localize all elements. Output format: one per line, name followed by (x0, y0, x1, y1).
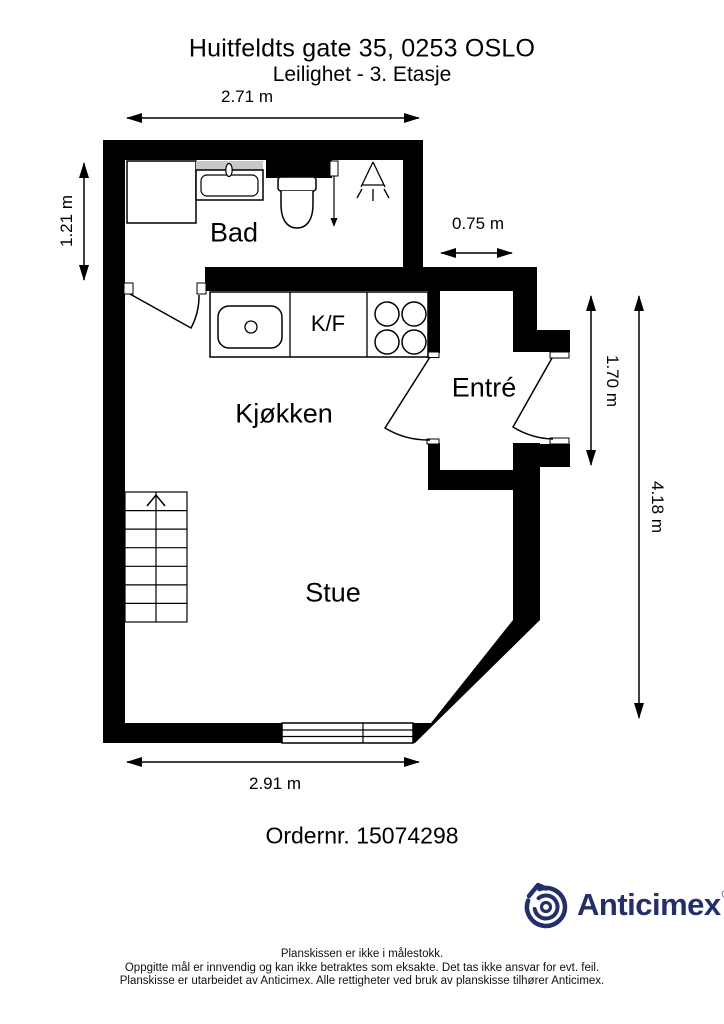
room-label-fridge-freezer: K/F (311, 311, 345, 337)
room-label-entrance: Entré (452, 373, 517, 404)
dim-label-bathroom-depth: 1.21 m (57, 195, 77, 247)
dim-label-entrance-width: 0.75 m (452, 214, 504, 234)
kitchen-door-swing (385, 357, 430, 440)
dim-label-right-total: 4.18 m (647, 481, 667, 533)
footer-line-3: Planskisse er utarbeidet av Anticimex. A… (0, 975, 724, 989)
window (282, 723, 413, 743)
floor-plan-page: Huitfeldts gate 35, 0253 OSLO Leilighet … (0, 0, 724, 1024)
order-number: Ordernr. 15074298 (265, 823, 458, 850)
room-label-kitchen: Kjøkken (235, 399, 333, 430)
shower-icon (127, 161, 196, 223)
drain-line-icon (330, 161, 338, 227)
diagonal-wall (411, 620, 540, 743)
footer-disclaimer: Planskissen er ikke i målestokk. Oppgitt… (0, 948, 724, 989)
anticimex-logo-icon (516, 879, 572, 931)
floor-plan-drawing (0, 0, 724, 1024)
page-subtitle: Leilighet - 3. Etasje (273, 63, 452, 87)
kitchen-sink-icon (218, 306, 282, 348)
dim-label-bathroom-width: 2.71 m (221, 87, 273, 107)
ventilation-icon (357, 162, 389, 201)
entrance-door-swing (513, 358, 553, 439)
anticimex-logo: Anticimex® (516, 879, 724, 931)
room-label-bathroom: Bad (210, 218, 258, 249)
bathroom-sink-icon (196, 161, 263, 200)
room-label-living-room: Stue (305, 578, 361, 609)
stairs-icon (125, 492, 187, 622)
footer-line-1: Planskissen er ikke i målestokk. (0, 948, 724, 962)
page-title: Huitfeldts gate 35, 0253 OSLO (189, 35, 535, 64)
footer-line-2: Oppgitte mål er innvendig og kan ikke be… (0, 962, 724, 976)
dim-label-living-width: 2.91 m (249, 774, 301, 794)
dim-label-entrance-depth: 1.70 m (602, 355, 622, 407)
toilet-icon (278, 177, 316, 228)
bathroom-door-swing (130, 294, 199, 328)
anticimex-wordmark: Anticimex (577, 887, 721, 923)
